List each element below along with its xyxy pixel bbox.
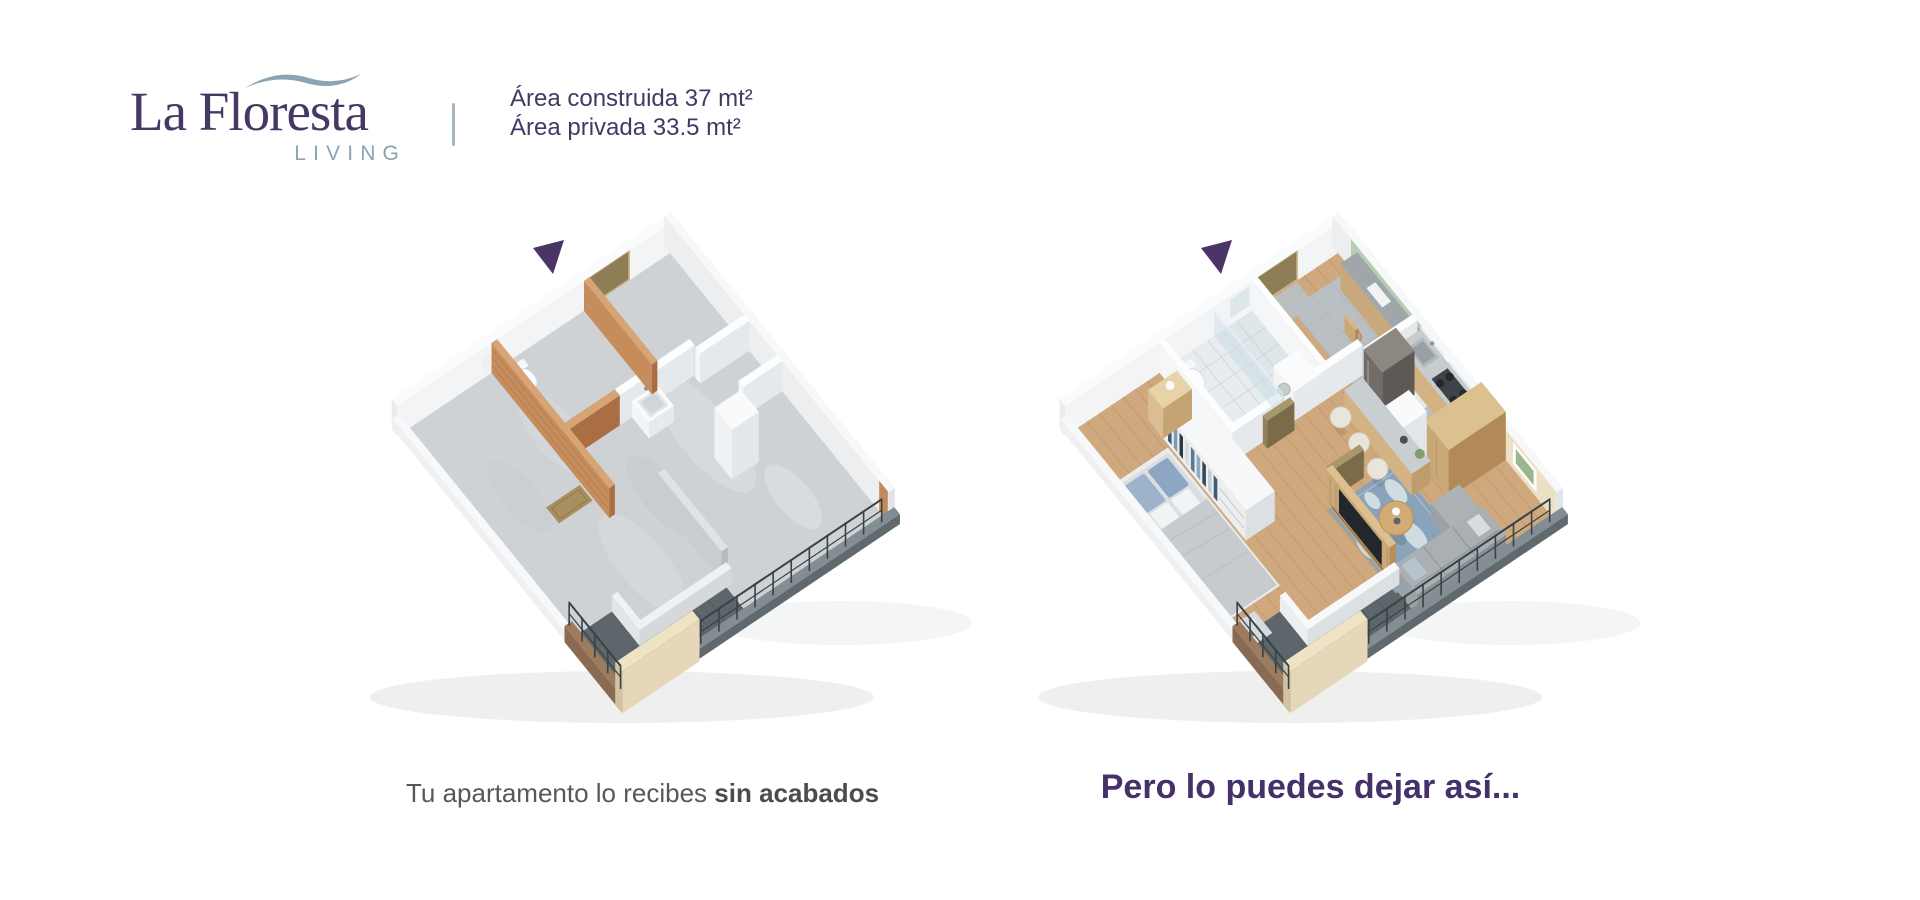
floorplan-furnished (1058, 195, 1563, 725)
coffee-table (1379, 501, 1413, 535)
header-divider (452, 103, 455, 146)
floorplan-furnished-render (1058, 195, 1563, 725)
caption-furnished: Pero lo puedes dejar así... (1058, 768, 1563, 807)
compass-triangle-marker (533, 240, 564, 274)
area-specs: Área construida 37 mt² Área privada 33.5… (510, 84, 753, 142)
caption-unfinished-text: Tu apartamento lo recibes (406, 778, 707, 808)
caption-unfinished: Tu apartamento lo recibes sin acabados (390, 778, 895, 809)
brand-subtitle: LIVING (130, 142, 406, 166)
caption-unfinished-emphasis: sin acabados (714, 778, 879, 808)
floorplan-unfinished (390, 195, 895, 725)
compass-triangle-marker (1201, 240, 1232, 274)
brand-logo: La Floresta LIVING (130, 70, 410, 170)
area-built: Área construida 37 mt² (510, 84, 753, 113)
floorplan-unfinished-render (390, 195, 895, 725)
area-private: Área privada 33.5 mt² (510, 113, 753, 142)
brand-title: La Floresta (130, 84, 368, 139)
page: La Floresta LIVING Área construida 37 mt… (0, 0, 1920, 900)
